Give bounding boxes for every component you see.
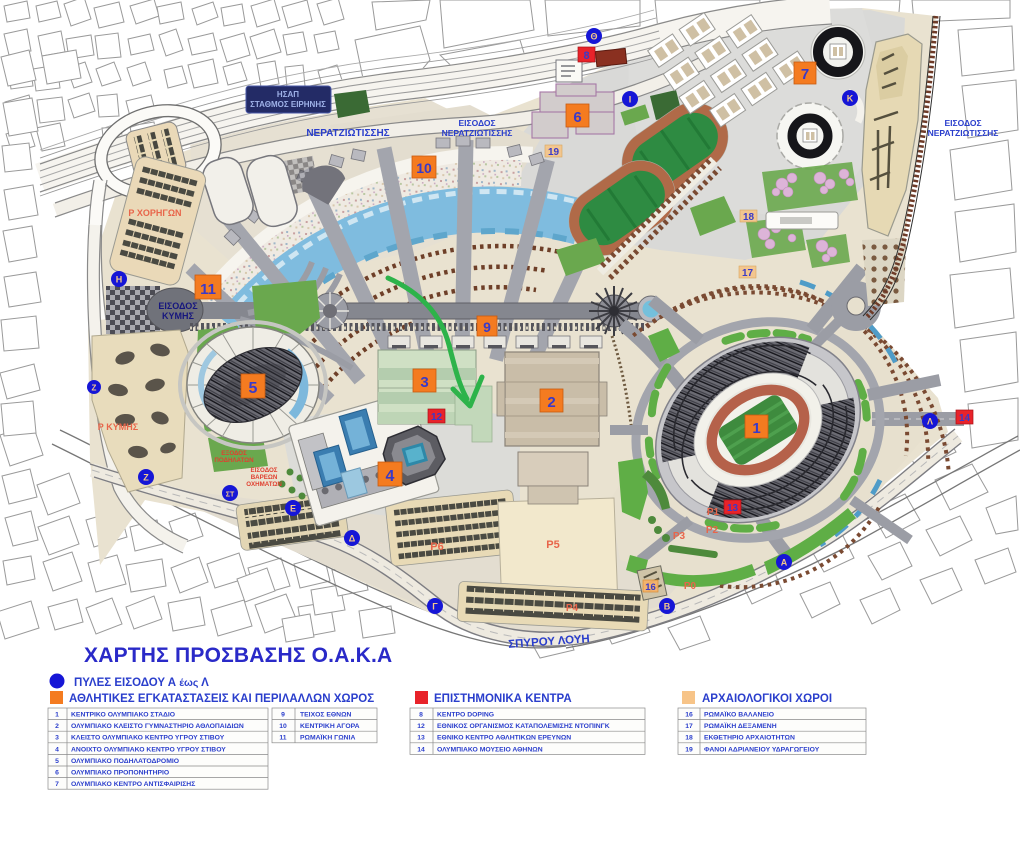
svg-text:ΧΑΡΤΗΣ ΠΡΟΣΒΑΣΗΣ Ο.Α.Κ.Α: ΧΑΡΤΗΣ ΠΡΟΣΒΑΣΗΣ Ο.Α.Κ.Α [84,644,392,667]
svg-text:3: 3 [420,374,428,391]
svg-text:ΟΛΥΜΠΙΑΚΟ ΜΟΥΣΕΙΟ ΑΘΗΝΩΝ: ΟΛΥΜΠΙΑΚΟ ΜΟΥΣΕΙΟ ΑΘΗΝΩΝ [437,746,543,753]
svg-text:Ρ3: Ρ3 [673,531,686,542]
svg-text:11: 11 [279,735,286,742]
svg-text:ΕΙΣΟΔΟΣ: ΕΙΣΟΔΟΣ [250,467,277,474]
svg-text:ΕΙΣΟΔΟΣ: ΕΙΣΟΔΟΣ [458,118,495,128]
svg-text:14: 14 [417,746,425,753]
svg-text:8: 8 [583,50,589,62]
svg-text:18: 18 [685,735,693,742]
svg-text:Ε: Ε [290,504,296,514]
svg-text:ΣΤΑΘΜΟΣ ΕΙΡΗΝΗΣ: ΣΤΑΘΜΟΣ ΕΙΡΗΝΗΣ [250,100,326,109]
svg-text:7: 7 [801,66,809,83]
svg-text:ΟΛΥΜΠΙΑΚΟ ΠΡΟΠΟΝΗΤΗΡΙΟ: ΟΛΥΜΠΙΑΚΟ ΠΡΟΠΟΝΗΤΗΡΙΟ [71,770,169,777]
svg-text:ΤΕΙΧΟΣ ΕΘΝΩΝ: ΤΕΙΧΟΣ ΕΘΝΩΝ [300,712,352,719]
svg-text:5: 5 [249,380,258,397]
svg-text:ΕΘΝΙΚΟ ΚΕΝΤΡΟ ΑΘΛΗΤΙΚΩΝ ΕΡΕΥΝΩ: ΕΘΝΙΚΟ ΚΕΝΤΡΟ ΑΘΛΗΤΙΚΩΝ ΕΡΕΥΝΩΝ [437,735,571,742]
svg-text:ΑΘΛΗΤΙΚΕΣ ΕΓΚΑΤΑΣΤΑΣΕΙΣ ΚΑΙ ΠΕ: ΑΘΛΗΤΙΚΕΣ ΕΓΚΑΤΑΣΤΑΣΕΙΣ ΚΑΙ ΠΕΡΙΛΑΛΛΩΝ Χ… [69,693,374,705]
svg-text:Ρ1: Ρ1 [707,507,720,518]
svg-text:ΠΟΔΗΛΑΤΩΝ: ΠΟΔΗΛΑΤΩΝ [214,457,254,464]
svg-text:11: 11 [200,281,216,298]
svg-text:Β: Β [664,602,671,612]
svg-text:Δ: Δ [349,534,356,544]
svg-text:18: 18 [743,212,755,223]
svg-text:8: 8 [419,712,423,719]
svg-text:ΟΛΥΜΠΙΑΚΟ ΠΟΔΗΛΑΤΟΔΡΟΜΙΟ: ΟΛΥΜΠΙΑΚΟ ΠΟΔΗΛΑΤΟΔΡΟΜΙΟ [71,758,179,765]
svg-text:10: 10 [279,723,287,730]
svg-text:ΠΥΛΕΣ ΕΙΣΟΔΟΥ Α έως Λ: ΠΥΛΕΣ ΕΙΣΟΔΟΥ Α έως Λ [74,677,209,689]
svg-text:ΝΕΡΑΤΖΙΩΤΙΣΣΗΣ: ΝΕΡΑΤΖΙΩΤΙΣΣΗΣ [306,128,389,139]
svg-text:ΕΙΣΟΔΟΣ: ΕΙΣΟΔΟΣ [944,118,981,128]
svg-text:ΚΕΝΤΡΙΚΟ ΟΛΥΜΠΙΑΚΟ ΣΤΑΔΙΟ: ΚΕΝΤΡΙΚΟ ΟΛΥΜΠΙΑΚΟ ΣΤΑΔΙΟ [71,712,175,719]
svg-text:ΚΥΜΗΣ: ΚΥΜΗΣ [162,311,194,321]
svg-text:ΡΩΜΑΪΚΗ ΔΕΞΑΜΕΝΗ: ΡΩΜΑΪΚΗ ΔΕΞΑΜΕΝΗ [704,722,777,730]
svg-text:1: 1 [55,712,59,719]
svg-text:ΟΛΥΜΠΙΑΚΟ ΚΕΝΤΡΟ ΑΝΤΙΣΦΑΙΡΙΣΗΣ: ΟΛΥΜΠΙΑΚΟ ΚΕΝΤΡΟ ΑΝΤΙΣΦΑΙΡΙΣΗΣ [71,781,195,788]
svg-text:7: 7 [55,781,59,788]
svg-text:6: 6 [573,109,581,126]
svg-text:10: 10 [416,160,432,176]
svg-text:ΦΑΝΟΙ ΑΔΡΙΑΝΕΙΟΥ ΥΔΡΑΓΩΓΕΙΟΥ: ΦΑΝΟΙ ΑΔΡΙΑΝΕΙΟΥ ΥΔΡΑΓΩΓΕΙΟΥ [704,746,820,753]
svg-text:ΕΠΙΣΤΗΜΟΝΙΚΑ ΚΕΝΤΡΑ: ΕΠΙΣΤΗΜΟΝΙΚΑ ΚΕΝΤΡΑ [434,693,572,705]
svg-text:Ζ: Ζ [92,384,97,393]
svg-text:17: 17 [742,268,754,279]
svg-text:Λ: Λ [927,417,933,427]
svg-text:16: 16 [685,712,693,719]
svg-text:Γ: Γ [432,602,438,612]
svg-text:Α: Α [781,558,788,568]
svg-text:ΒΑΡΕΩΝ: ΒΑΡΕΩΝ [251,474,278,481]
svg-text:ΚΕΝΤΡΙΚΗ ΑΓΟΡΑ: ΚΕΝΤΡΙΚΗ ΑΓΟΡΑ [300,723,360,730]
svg-text:Η: Η [116,275,123,285]
svg-text:Κ: Κ [847,94,854,104]
svg-text:14: 14 [959,413,971,424]
svg-text:19: 19 [548,147,560,158]
svg-text:ΝΕΡΑΤΖΙΩΤΙΣΣΗΣ: ΝΕΡΑΤΖΙΩΤΙΣΣΗΣ [442,128,513,138]
svg-text:Θ: Θ [590,32,597,42]
svg-text:9: 9 [281,712,285,719]
svg-text:17: 17 [685,723,693,730]
svg-text:ΚΕΝΤΡΟ DOPING: ΚΕΝΤΡΟ DOPING [437,712,494,719]
svg-text:ΕΚΘΕΤΗΡΙΟ ΑΡΧΑΙΟΤΗΤΩΝ: ΕΚΘΕΤΗΡΙΟ ΑΡΧΑΙΟΤΗΤΩΝ [704,735,795,742]
svg-text:ΚΛΕΙΣΤΟ ΟΛΥΜΠΙΑΚΟ ΚΕΝΤΡΟ ΥΓΡΟΥ: ΚΛΕΙΣΤΟ ΟΛΥΜΠΙΑΚΟ ΚΕΝΤΡΟ ΥΓΡΟΥ ΣΤΙΒΟΥ [71,735,225,742]
svg-text:Ρ2: Ρ2 [706,525,719,536]
svg-text:4: 4 [386,468,395,485]
svg-text:16: 16 [645,582,656,593]
svg-text:ΗΣΑΠ: ΗΣΑΠ [277,90,299,99]
svg-text:12: 12 [417,723,425,730]
svg-text:13: 13 [417,735,425,742]
svg-text:ΣΤ: ΣΤ [226,492,235,499]
svg-text:ΡΩΜΑΪΚΗ ΓΩΝΙΑ: ΡΩΜΑΪΚΗ ΓΩΝΙΑ [300,734,355,742]
svg-text:Ι: Ι [629,95,632,105]
svg-text:Ρ0: Ρ0 [684,581,697,592]
svg-text:Ρ4: Ρ4 [566,603,579,614]
svg-text:ΡΩΜΑΪΚΟ ΒΑΛΑΝΕΙΟ: ΡΩΜΑΪΚΟ ΒΑΛΑΝΕΙΟ [704,711,774,719]
svg-text:ΝΕΡΑΤΖΙΩΤΙΣΣΗΣ: ΝΕΡΑΤΖΙΩΤΙΣΣΗΣ [928,128,999,138]
svg-text:Ρ5: Ρ5 [546,539,559,551]
svg-text:1: 1 [752,420,760,437]
svg-text:9: 9 [483,319,491,335]
svg-text:ΕΙΣΟΔΟΣ: ΕΙΣΟΔΟΣ [158,301,198,311]
svg-text:Ρ ΚΥΜΗΣ: Ρ ΚΥΜΗΣ [98,422,139,432]
svg-text:ΑΝΟΙΧΤΟ ΟΛΥΜΠΙΑΚΟ ΚΕΝΤΡΟ ΥΓΡΟΥ: ΑΝΟΙΧΤΟ ΟΛΥΜΠΙΑΚΟ ΚΕΝΤΡΟ ΥΓΡΟΥ ΣΤΙΒΟΥ [71,746,226,753]
svg-text:Ρ6: Ρ6 [430,541,443,553]
svg-text:19: 19 [685,746,693,753]
svg-text:2: 2 [547,394,555,411]
svg-text:ΟΛΥΜΠΙΑΚΟ ΚΛΕΙΣΤΟ ΓΥΜΝΑΣΤΗΡΙΟ: ΟΛΥΜΠΙΑΚΟ ΚΛΕΙΣΤΟ ΓΥΜΝΑΣΤΗΡΙΟ ΑΘΛΟΠΑΙΔΙΩ… [71,723,244,730]
svg-text:3: 3 [55,735,59,742]
svg-text:2: 2 [55,723,59,730]
svg-text:4: 4 [55,746,59,753]
svg-text:12: 12 [431,412,443,423]
svg-text:6: 6 [55,770,59,777]
svg-text:ΕΞΟΔΟΣ: ΕΞΟΔΟΣ [221,450,247,457]
svg-text:ΟΧΗΜΑΤΩΝ: ΟΧΗΜΑΤΩΝ [246,481,282,488]
svg-text:ΑΡΧΑΙΟΛΟΓΙΚΟΙ ΧΩΡΟΙ: ΑΡΧΑΙΟΛΟΓΙΚΟΙ ΧΩΡΟΙ [702,693,832,705]
svg-text:13: 13 [727,503,739,514]
svg-text:ΕΘΝΙΚΟΣ ΟΡΓΑΝΙΣΜΟΣ ΚΑΤΑΠΟΛΕΜΙΣ: ΕΘΝΙΚΟΣ ΟΡΓΑΝΙΣΜΟΣ ΚΑΤΑΠΟΛΕΜΙΣΗΣ ΝΤΟΠΙΝΓ… [437,723,610,730]
svg-text:Ρ ΧΟΡΗΓΩΝ: Ρ ΧΟΡΗΓΩΝ [128,208,181,218]
svg-text:5: 5 [55,758,59,765]
svg-text:Ζ: Ζ [143,473,149,483]
